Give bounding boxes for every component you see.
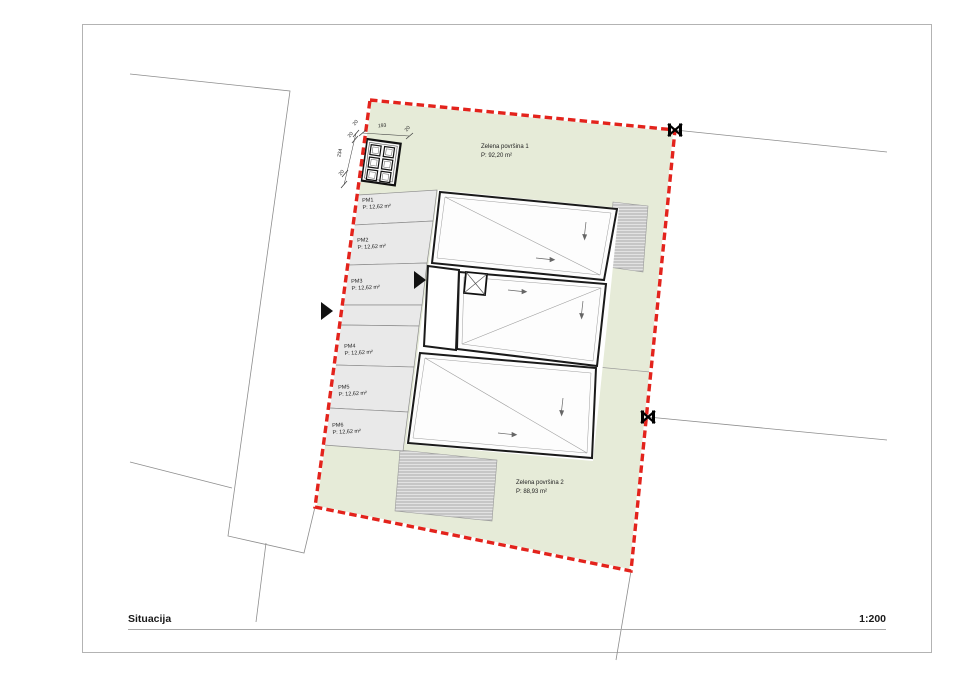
- green-area-2-area: P: 88,93 m²: [516, 488, 564, 497]
- green-area-1-area: P: 92,20 m²: [481, 152, 529, 161]
- parking-label-pm4: PM4 P: 12,62 m²: [344, 343, 373, 358]
- drawing-scale: 1:200: [820, 613, 886, 625]
- title-rule: [128, 629, 886, 630]
- parking-label-pm1: PM1 P: 12,62 m²: [362, 197, 391, 212]
- green-area-2-label: Zelena površina 2 P: 88,93 m²: [516, 479, 564, 496]
- parking-label-pm5: PM5 P: 12,62 m²: [338, 384, 367, 399]
- dim-top-193: 193: [378, 123, 387, 130]
- hatched-terrace-bottom: [395, 450, 497, 521]
- site-plan-canvas: Zelena površina 1 P: 92,20 m² Zelena pov…: [0, 0, 960, 679]
- roof-block-bottom: [408, 353, 596, 458]
- drawing-title: Situacija: [128, 613, 171, 625]
- site-entrance-arrow-icon: [321, 302, 333, 320]
- skylight: [464, 272, 487, 295]
- parking-label-pm2: PM2 P: 12,62 m²: [357, 237, 386, 252]
- green-area-1-name: Zelena površina 1: [481, 143, 529, 152]
- entrance-court: [424, 266, 459, 350]
- green-area-1-label: Zelena površina 1 P: 92,20 m²: [481, 143, 529, 160]
- green-area-2-name: Zelena površina 2: [516, 479, 564, 488]
- parking-label-pm6: PM6 P: 12,62 m²: [332, 422, 361, 437]
- bin-enclosure: [361, 139, 401, 185]
- building: [406, 190, 619, 461]
- parking-label-pm3: PM3 P: 12,62 m²: [351, 278, 380, 293]
- parking-walkway: [341, 305, 422, 326]
- site-plan-drawing: [0, 0, 960, 679]
